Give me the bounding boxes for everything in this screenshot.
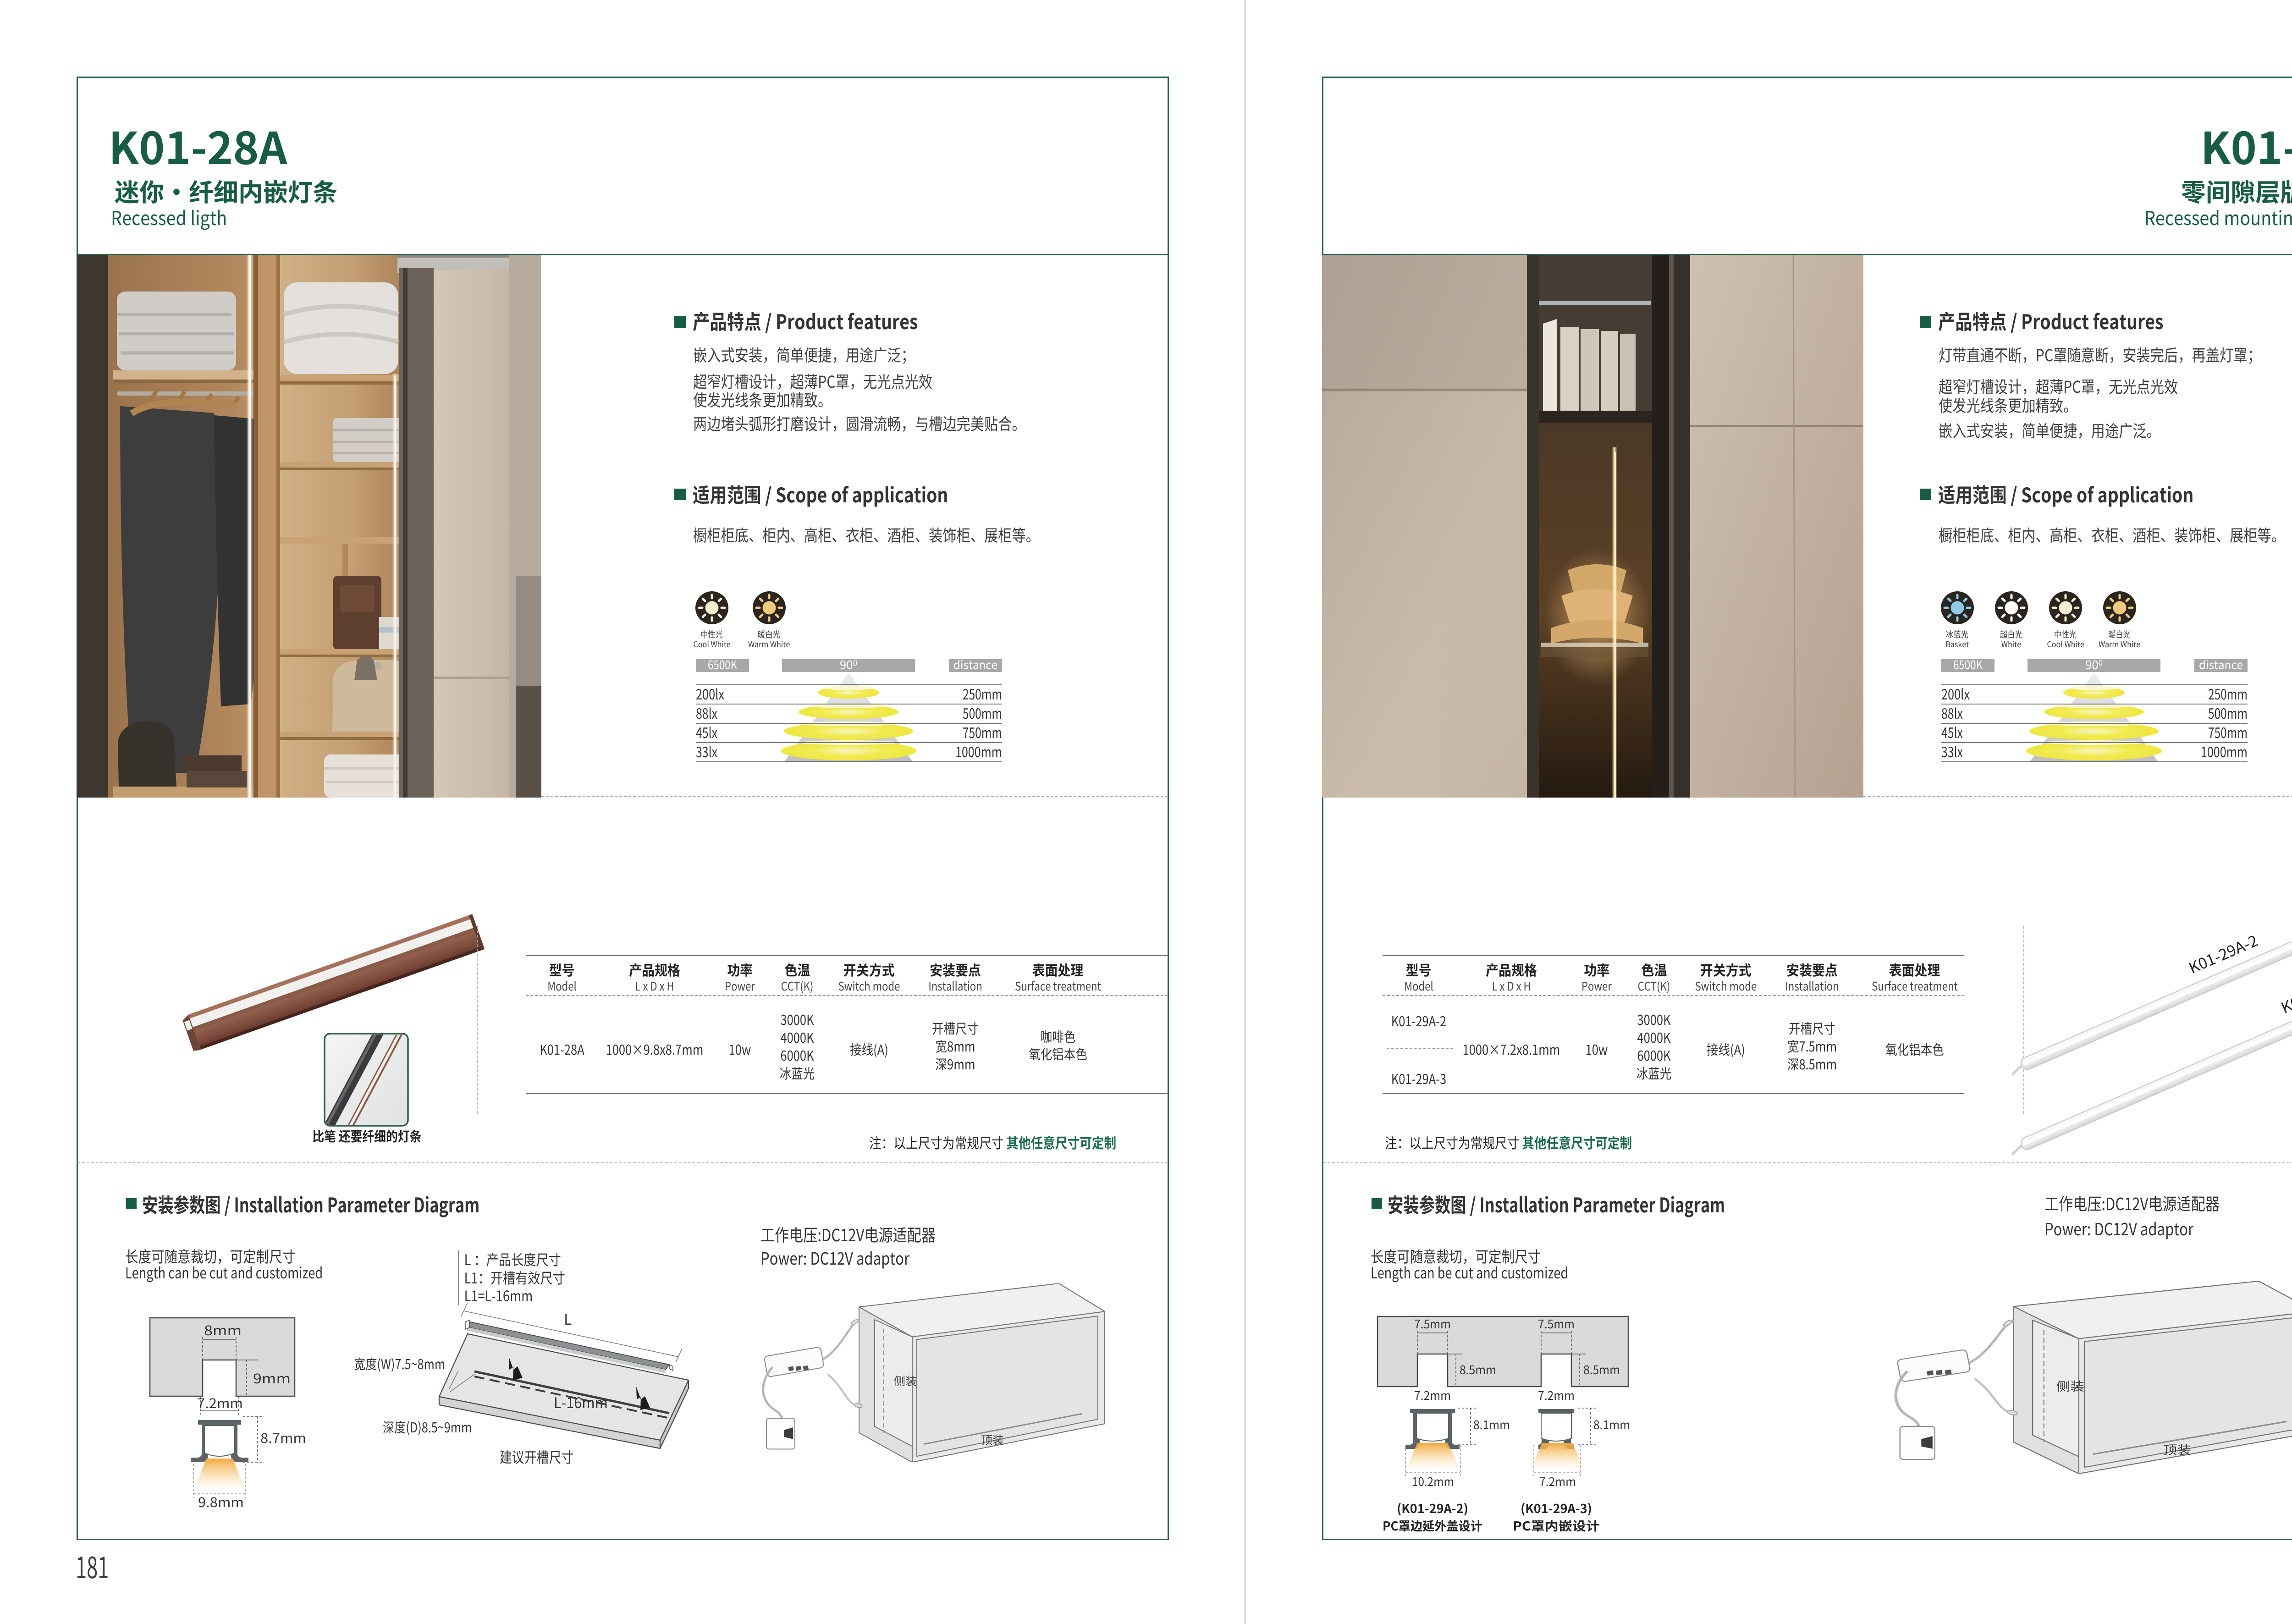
svg-text:45lx: 45lx <box>696 721 717 742</box>
svg-text:7.2mm: 7.2mm <box>197 1393 243 1412</box>
svg-text:PC罩边延外盖设计: PC罩边延外盖设计 <box>1383 1516 1482 1534</box>
svg-text:(K01-29A-2): (K01-29A-2) <box>1397 1499 1468 1517</box>
svg-text:88lx: 88lx <box>1941 702 1963 723</box>
svg-text:L: L <box>564 1308 572 1329</box>
svg-text:1000mm: 1000mm <box>955 741 1002 761</box>
svg-text:distance: distance <box>2199 656 2243 673</box>
svg-text:8mm: 8mm <box>204 1320 242 1339</box>
svg-text:L-16mm: L-16mm <box>554 1392 608 1413</box>
svg-text:8.1mm: 8.1mm <box>1473 1416 1510 1433</box>
svg-text:500mm: 500mm <box>2208 702 2248 723</box>
svg-text:750mm: 750mm <box>2208 721 2248 742</box>
svg-text:7.5mm: 7.5mm <box>1538 1315 1575 1332</box>
svg-text:侧装: 侧装 <box>2056 1377 2084 1395</box>
svg-text:250mm: 250mm <box>2208 683 2248 704</box>
svg-text:500mm: 500mm <box>963 702 1002 723</box>
svg-text:K01-29A-3: K01-29A-3 <box>2277 969 2292 1018</box>
svg-text:侧装: 侧装 <box>894 1372 917 1389</box>
svg-text:45lx: 45lx <box>1941 721 1963 742</box>
svg-text:8.5mm: 8.5mm <box>1583 1361 1620 1378</box>
svg-text:7.2mm: 7.2mm <box>1538 1387 1575 1404</box>
svg-text:顶装: 顶装 <box>2163 1441 2191 1458</box>
svg-text:200lx: 200lx <box>696 683 724 704</box>
svg-text:8.7mm: 8.7mm <box>260 1428 306 1447</box>
svg-text:distance: distance <box>953 656 997 673</box>
svg-text:8.5mm: 8.5mm <box>1460 1361 1496 1378</box>
svg-text:88lx: 88lx <box>696 702 717 723</box>
svg-text:750mm: 750mm <box>963 721 1002 742</box>
svg-text:PC罩内嵌设计: PC罩内嵌设计 <box>1513 1516 1600 1534</box>
svg-text:(K01-29A-3): (K01-29A-3) <box>1521 1499 1592 1517</box>
svg-text:200lx: 200lx <box>1941 683 1970 704</box>
svg-text:9mm: 9mm <box>253 1368 291 1387</box>
svg-text:33lx: 33lx <box>696 741 717 761</box>
svg-text:6500K: 6500K <box>1953 656 1983 673</box>
svg-text:250mm: 250mm <box>963 683 1002 704</box>
svg-text:7.2mm: 7.2mm <box>1414 1387 1451 1404</box>
svg-text:7.5mm: 7.5mm <box>1414 1315 1451 1332</box>
svg-text:顶装: 顶装 <box>981 1431 1004 1448</box>
svg-text:6500K: 6500K <box>708 656 737 673</box>
svg-text:7.2mm: 7.2mm <box>1539 1473 1576 1490</box>
svg-text:9.8mm: 9.8mm <box>198 1492 244 1508</box>
svg-text:8.1mm: 8.1mm <box>1593 1416 1630 1433</box>
svg-text:33lx: 33lx <box>1941 741 1963 761</box>
svg-text:1000mm: 1000mm <box>2201 741 2248 761</box>
svg-text:10.2mm: 10.2mm <box>1412 1473 1454 1490</box>
